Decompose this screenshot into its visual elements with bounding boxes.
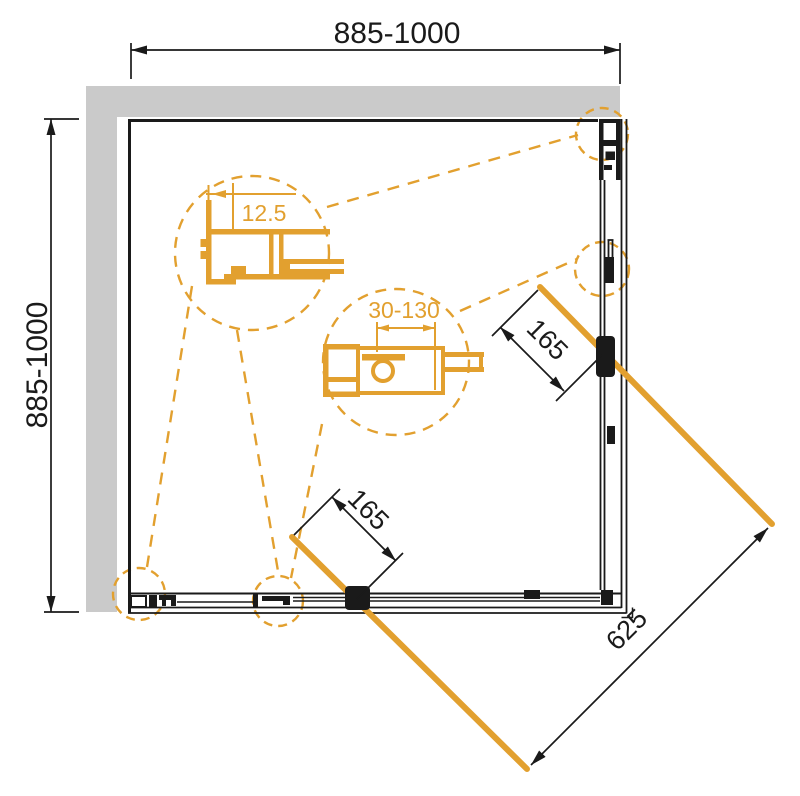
top-wall (86, 86, 620, 117)
dim-right-handle-label: 165 (521, 313, 574, 366)
right-handle-mount (596, 336, 615, 377)
bottom-mid-bracket-step (283, 601, 290, 605)
bottom-wall-profile (131, 595, 176, 607)
dim-diagonal: 625 (531, 528, 768, 765)
dim-diagonal-label: 625 (600, 603, 653, 656)
right-bottom-endpiece (601, 590, 613, 605)
shower-enclosure-plan-drawing: 12.5 30-130 885-1000 885-10 (0, 0, 800, 796)
dim-left-label: 885-1000 (21, 302, 54, 429)
dim-top-width: 885-1000 (131, 17, 620, 84)
dim-top-arrow-left (131, 46, 147, 55)
bottom-right-bracket (524, 590, 540, 599)
right-wall-profile (599, 119, 621, 180)
detail-callouts (113, 108, 629, 626)
bottom-mid-bracket (262, 596, 290, 601)
detail1-label: 12.5 (242, 200, 287, 226)
detail2-arrow-left (377, 325, 389, 332)
right-door-handle-bar (540, 287, 772, 524)
right-lower-bracket (607, 426, 615, 444)
plan-svg: 12.5 30-130 885-1000 885-10 (0, 0, 800, 796)
leader-wallprofile-to-topright (327, 135, 578, 207)
detail2-arrow-right (423, 325, 435, 332)
detail-adjustment-drawing: 30-130 (323, 297, 484, 397)
dim-left-arrow-top (47, 119, 56, 135)
bottom-door-edge (253, 593, 258, 607)
dim-top-label: 885-1000 (334, 17, 461, 50)
left-wall (86, 86, 117, 612)
dim-left-depth: 885-1000 (21, 119, 79, 612)
leader-wallprofile-to-bottomleft (147, 286, 192, 567)
right-mid-bracket (604, 257, 614, 283)
dim-bottom-handle-label: 165 (342, 483, 395, 536)
dim-right-handle: 165 (492, 290, 602, 401)
detail1-arrow (212, 190, 226, 198)
leader-wallprofile-to-bottommid (237, 330, 279, 577)
detail2-label: 30-130 (368, 297, 440, 323)
dim-bottom-handle: 165 (294, 483, 403, 599)
dim-left-arrow-bottom (47, 596, 56, 612)
dim-top-arrow-right (604, 46, 620, 55)
bottom-door-handle-bar (292, 537, 527, 769)
detail-wall-profile-drawing: 12.5 (201, 183, 345, 285)
